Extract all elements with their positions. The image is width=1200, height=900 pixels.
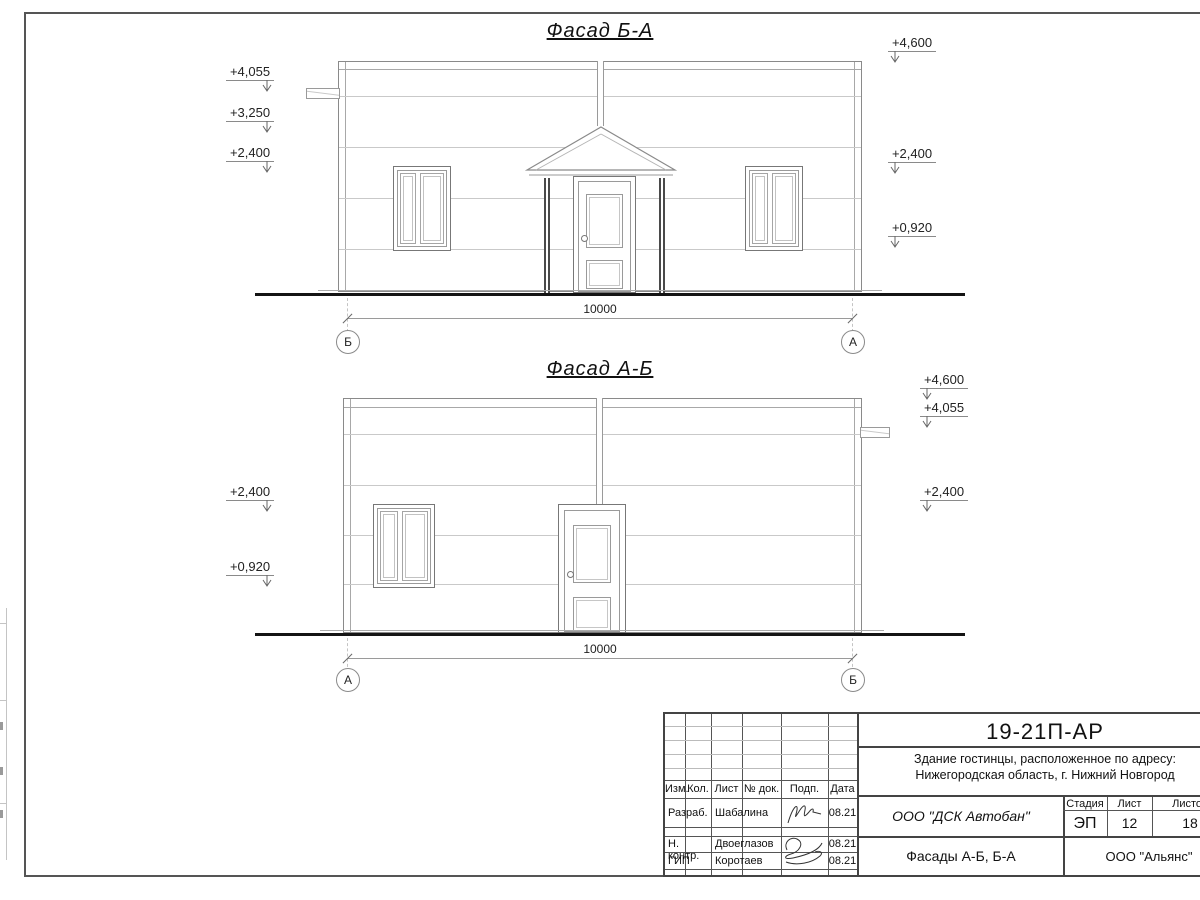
door-panel	[586, 194, 623, 248]
col-list: Лист	[711, 783, 742, 795]
axis-bubble: А	[336, 668, 360, 692]
elevation-arrow-icon	[261, 500, 273, 513]
sheets-total: 18	[1152, 815, 1200, 831]
margin-fragment-line	[0, 803, 6, 804]
wall-outlet	[860, 427, 890, 438]
stage-label: Стадия	[1063, 798, 1107, 810]
col-podp: Подп.	[781, 783, 828, 795]
elevation-mark: +4,055	[226, 64, 274, 81]
facade-bottom-title: Фасад А-Б	[480, 358, 720, 381]
door-panel	[586, 260, 623, 289]
elevation-arrow-icon	[261, 575, 273, 588]
elevation-arrow-icon	[921, 416, 933, 429]
wall-outlet	[306, 88, 340, 99]
role-name: Двоеглазов	[715, 838, 781, 850]
window	[745, 166, 803, 251]
door-leaf	[578, 181, 631, 292]
frame-left	[24, 12, 26, 877]
elevation-mark: +0,920	[888, 220, 936, 237]
elevation-mark: +2,400	[226, 484, 274, 501]
elevation-value: +4,600	[892, 35, 932, 50]
margin-fragment-line	[0, 700, 6, 701]
sheet-label: Лист	[1107, 798, 1152, 810]
margin-fragment-text	[0, 722, 3, 730]
axis-bubble: Б	[336, 330, 360, 354]
role-name: Шабалина	[715, 807, 781, 819]
sheet-number: 12	[1107, 815, 1152, 831]
elevation-value: +2,400	[892, 146, 932, 161]
porch-post	[659, 178, 665, 293]
vent-pipe	[596, 398, 603, 504]
elevation-mark: +2,400	[226, 145, 274, 162]
elevation-arrow-icon	[921, 500, 933, 513]
role-date: 08.21	[828, 807, 857, 819]
signature	[779, 832, 827, 870]
design-org: ООО "ДСК Автобан"	[859, 808, 1063, 824]
elevation-mark: +4,600	[920, 372, 968, 389]
entrance-door	[573, 176, 636, 293]
margin-fragment-text	[0, 767, 3, 775]
margin-fragment-text	[0, 810, 3, 818]
ground-line	[255, 633, 965, 636]
elevation-arrow-icon	[261, 121, 273, 134]
dimension-line	[347, 318, 852, 319]
elevation-arrow-icon	[889, 51, 901, 64]
door-panel	[573, 525, 611, 583]
customer-org: ООО "Альянс"	[1065, 849, 1200, 864]
title-block: Изм. Кол. Лист № док. Подп. Дата Разраб.…	[663, 712, 1200, 877]
col-izm: Изм.	[665, 783, 685, 795]
elevation-mark: +4,600	[888, 35, 936, 52]
role-label: ГИП	[668, 855, 712, 867]
extension-line	[852, 638, 853, 672]
axis-bubble: А	[841, 330, 865, 354]
sheets-label: Листов	[1152, 798, 1200, 810]
role-label: Разраб.	[668, 807, 712, 819]
dimension-line	[347, 658, 852, 659]
elevation-value: +2,400	[230, 484, 270, 499]
margin-fragment-line	[6, 608, 7, 860]
vent-pipe	[597, 61, 604, 126]
signature	[783, 801, 827, 827]
elevation-value: +0,920	[892, 220, 932, 235]
plinth-line	[320, 630, 884, 631]
elevation-mark: +2,400	[920, 484, 968, 501]
elevation-arrow-icon	[261, 161, 273, 174]
elevation-mark: +0,920	[226, 559, 274, 576]
elevation-value: +4,055	[230, 64, 270, 79]
role-date: 08.21	[828, 838, 857, 850]
window	[373, 504, 435, 588]
elevation-value: +3,250	[230, 105, 270, 120]
window	[393, 166, 451, 251]
elevation-value: +0,920	[230, 559, 270, 574]
porch-canopy	[525, 124, 677, 178]
elevation-value: +4,600	[924, 372, 964, 387]
elevation-mark: +4,055	[920, 400, 968, 417]
door-leaf	[564, 510, 620, 632]
extension-line	[347, 298, 348, 332]
col-data: Дата	[828, 783, 857, 795]
porch-post	[544, 178, 550, 293]
door-handle	[567, 571, 574, 578]
elevation-mark: +2,400	[888, 146, 936, 163]
elevation-mark: +3,250	[226, 105, 274, 122]
margin-fragment-line	[0, 623, 6, 624]
axis-bubble: Б	[841, 668, 865, 692]
back-door	[558, 504, 626, 633]
facade-top-title: Фасад Б-А	[480, 20, 720, 43]
door-handle	[581, 235, 588, 242]
door-panel	[573, 597, 611, 631]
elevation-value: +4,055	[924, 400, 964, 415]
frame-top	[24, 12, 1200, 14]
drawing-sheet: Фасад Б-А 1	[0, 0, 1200, 900]
extension-line	[347, 638, 348, 672]
col-kol: Кол.	[685, 783, 711, 795]
extension-line	[852, 298, 853, 332]
elevation-value: +2,400	[230, 145, 270, 160]
object-address-line1: Здание гостинцы, расположенное по адресу…	[857, 752, 1200, 766]
plinth-line	[318, 290, 882, 291]
elevation-arrow-icon	[261, 80, 273, 93]
elevation-value: +2,400	[924, 484, 964, 499]
elevation-arrow-icon	[889, 236, 901, 249]
role-name: Коротаев	[715, 855, 781, 867]
elevation-arrow-icon	[889, 162, 901, 175]
ground-line	[255, 293, 965, 296]
role-date: 08.21	[828, 855, 857, 867]
stage-value: ЭП	[1063, 815, 1107, 833]
sheet-doc-title: Фасады А-Б, Б-А	[859, 848, 1063, 864]
project-code: 19-21П-АР	[857, 719, 1200, 745]
object-address-line2: Нижегородская область, г. Нижний Новгоро…	[857, 768, 1200, 782]
col-ndok: № док.	[742, 783, 781, 795]
dimension-label: 10000	[555, 642, 645, 656]
dimension-label: 10000	[555, 302, 645, 316]
